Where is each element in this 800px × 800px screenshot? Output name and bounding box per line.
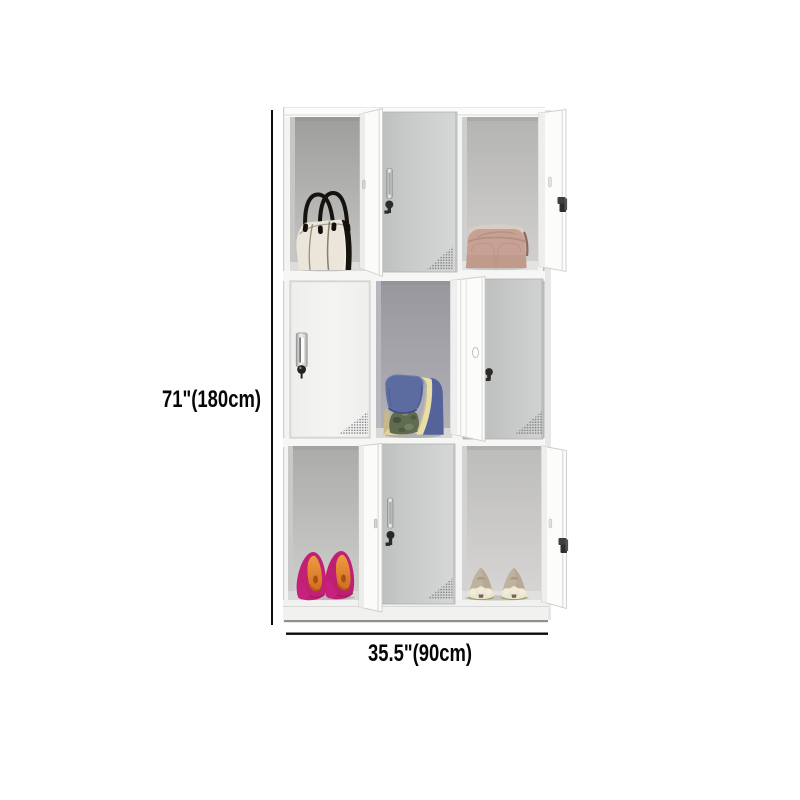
svg-text:71"(180cm): 71"(180cm) (162, 386, 261, 413)
svg-text:35.5"(90cm): 35.5"(90cm) (368, 640, 472, 667)
